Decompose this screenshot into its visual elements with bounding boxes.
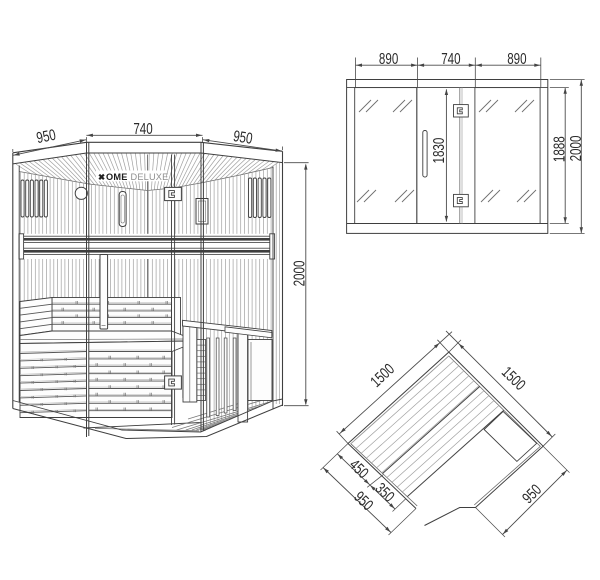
svg-text:890: 890 <box>379 50 399 67</box>
svg-text:890: 890 <box>507 50 527 67</box>
svg-text:2000: 2000 <box>291 260 308 286</box>
svg-text:740: 740 <box>441 50 461 67</box>
svg-text:OME: OME <box>106 172 128 182</box>
svg-text:2000: 2000 <box>567 135 584 161</box>
svg-text:DELUXE: DELUXE <box>131 172 169 182</box>
svg-text:✖: ✖ <box>98 172 106 182</box>
svg-text:950: 950 <box>232 127 254 147</box>
svg-text:740: 740 <box>133 121 153 138</box>
svg-text:1888: 1888 <box>551 136 568 162</box>
svg-text:1830: 1830 <box>430 137 447 163</box>
